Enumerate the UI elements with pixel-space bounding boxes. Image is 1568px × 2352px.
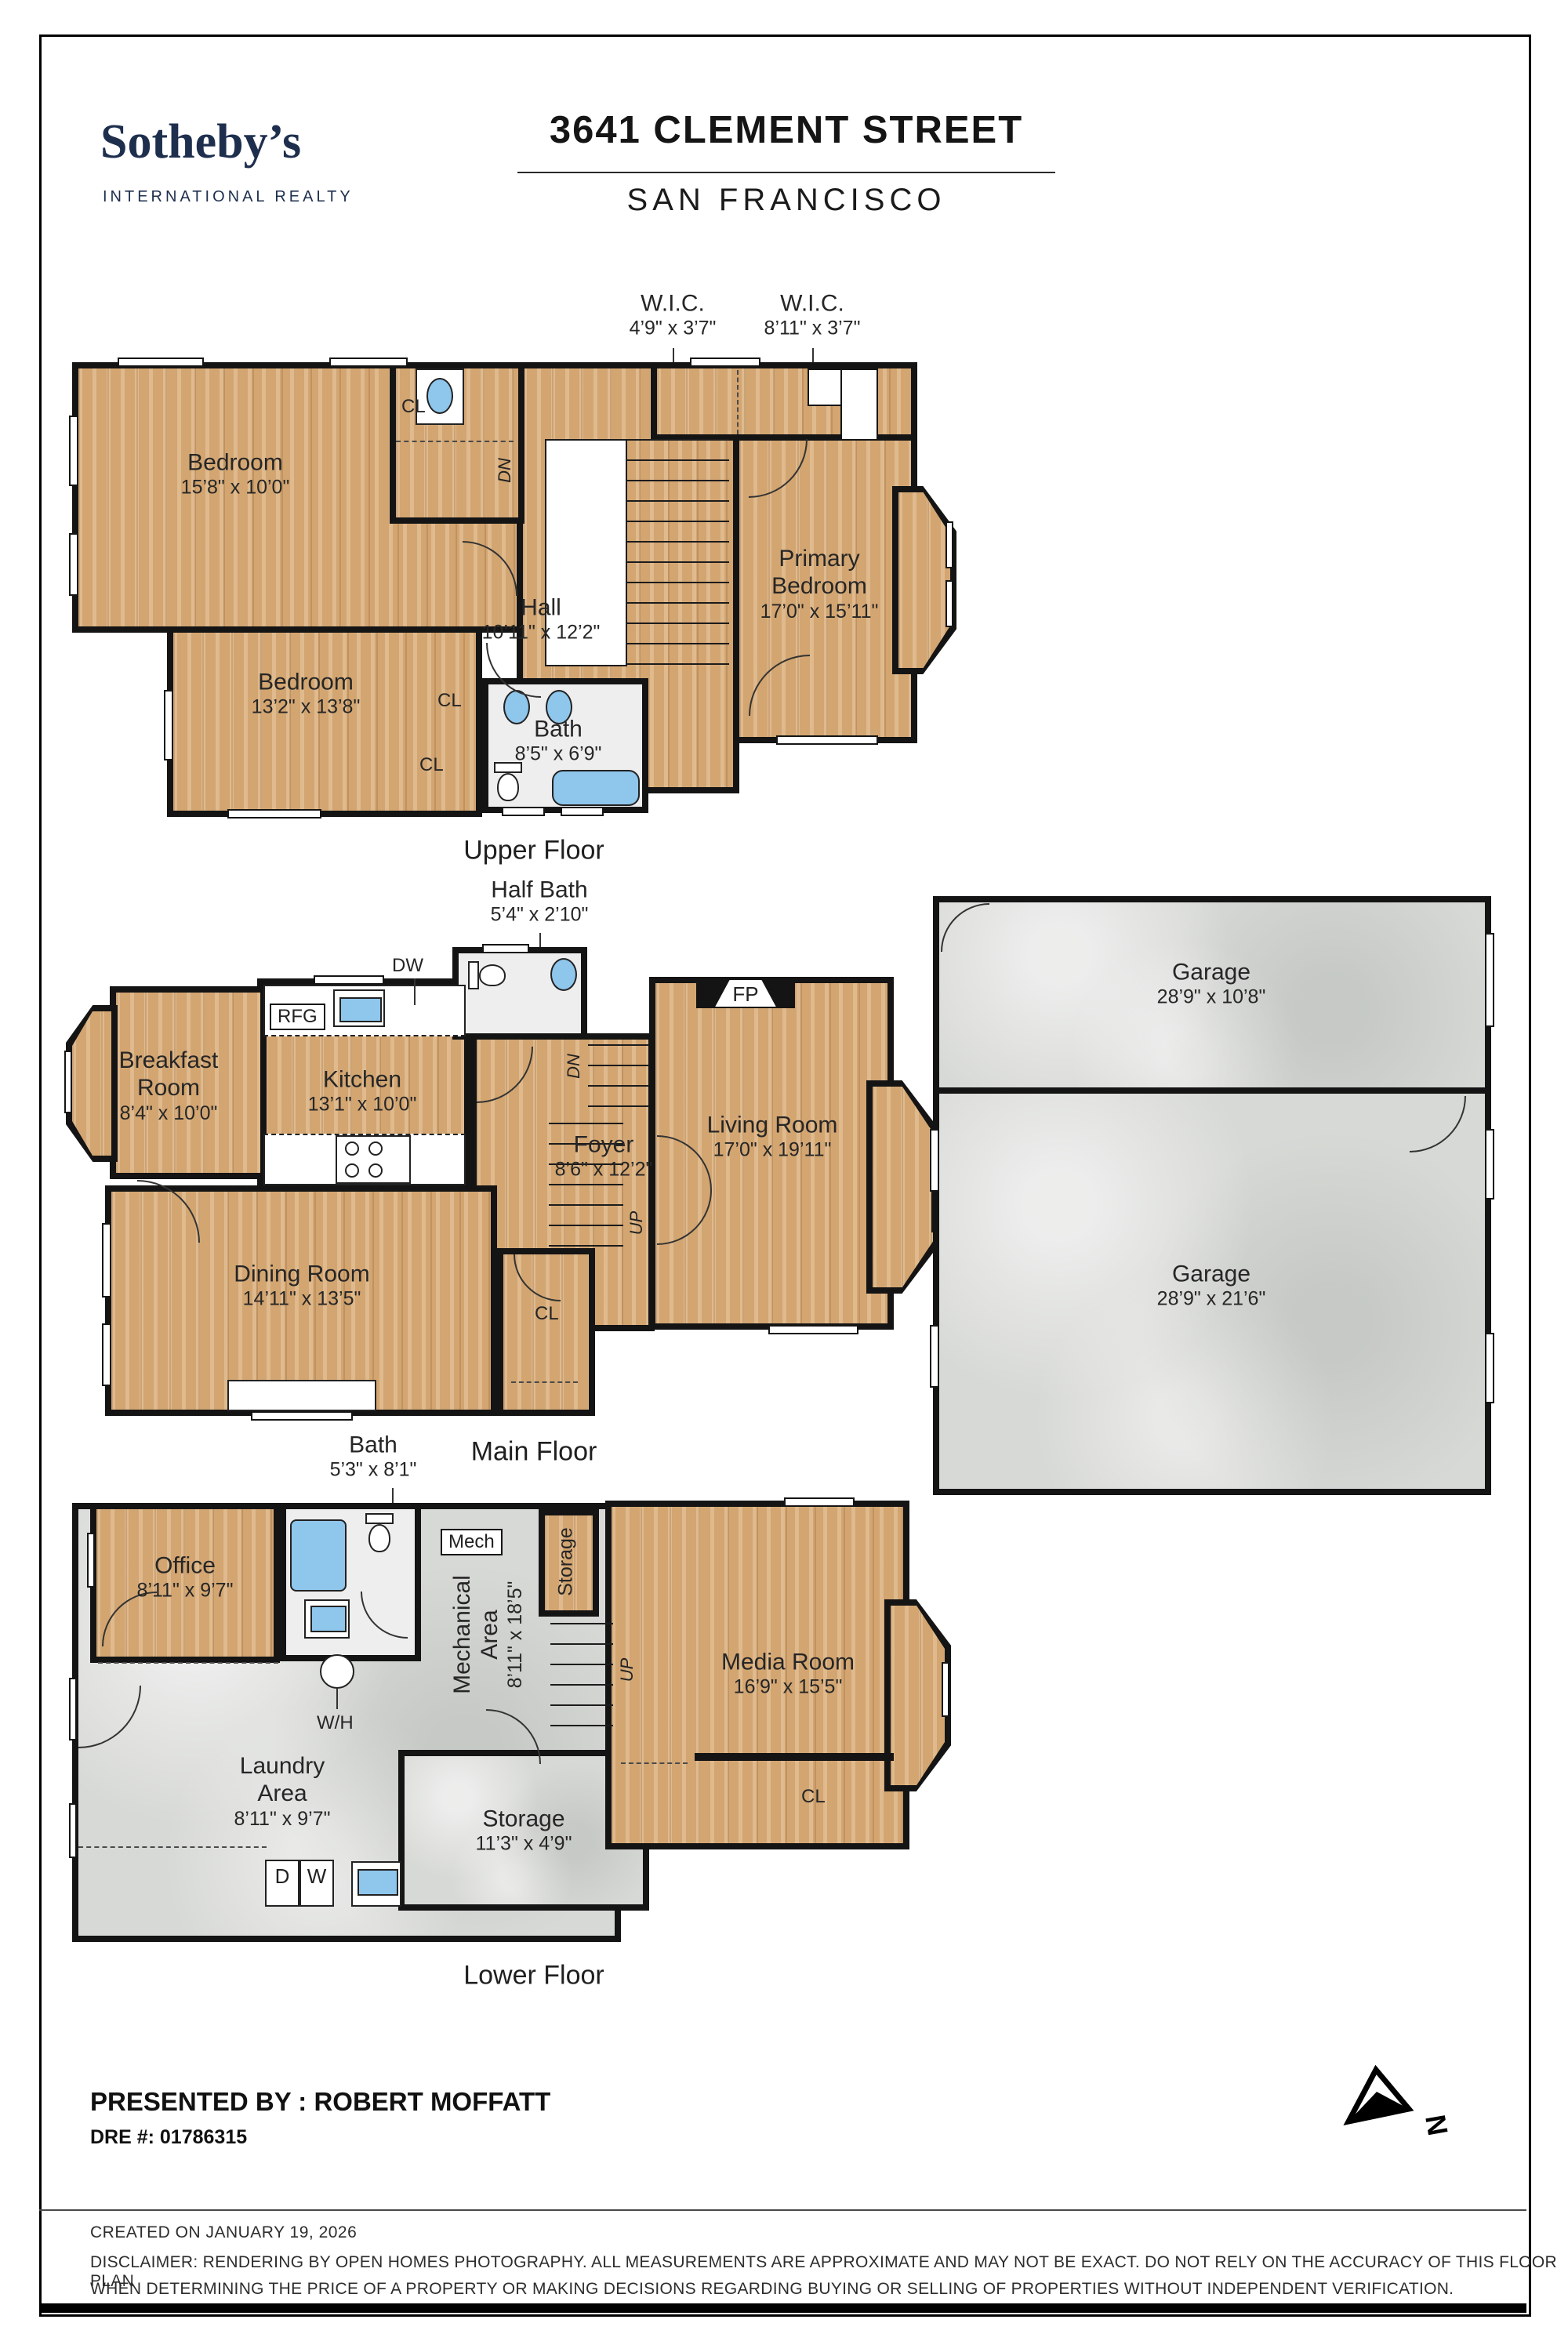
door-gap — [930, 1129, 939, 1192]
window — [482, 944, 529, 953]
closet-dashed-rod — [621, 1762, 688, 1764]
window — [69, 1803, 77, 1858]
laundry-sink-icon — [358, 1869, 398, 1896]
window — [784, 1497, 855, 1507]
closet-dashed-rod — [396, 441, 514, 442]
sink-icon — [310, 1606, 347, 1632]
window — [251, 1411, 353, 1421]
property-address: 3641 CLEMENT STREET — [510, 108, 1063, 152]
mech-label: Mech — [441, 1529, 503, 1555]
room-label-half-bath: Half Bath 5’4" x 2’10" — [491, 877, 589, 927]
sink-icon — [550, 958, 577, 991]
toilet-icon — [479, 964, 506, 986]
stairs-up-label-lower: UP — [617, 1658, 637, 1682]
toilet-icon — [468, 961, 479, 989]
window — [69, 533, 78, 596]
water-heater-leader — [336, 1689, 338, 1709]
bay-window — [946, 580, 953, 627]
presented-by: PRESENTED BY : ROBERT MOFFATT — [90, 2087, 550, 2117]
stairs-down-label-main: DN — [564, 1054, 584, 1079]
window — [561, 807, 604, 816]
fireplace-label: FP — [732, 982, 758, 1007]
window — [329, 358, 408, 367]
window — [227, 809, 321, 818]
disclaimer-line-2: WHEN DETERMINING THE PRICE OF A PROPERTY… — [90, 2280, 1454, 2299]
sink-icon — [426, 378, 453, 414]
window — [69, 416, 78, 486]
room-label-wic-1: W.I.C. 4’9" x 3’7" — [630, 290, 717, 341]
stove-burner — [345, 1142, 359, 1156]
closet-label: CL — [535, 1303, 559, 1325]
toilet-icon — [368, 1524, 390, 1552]
room-label-wic-2: W.I.C. 8’11" x 3’7" — [764, 290, 861, 341]
dining-sideboard — [227, 1380, 376, 1411]
laundry-dashed-line — [78, 1846, 267, 1848]
closet-wall — [695, 1753, 894, 1761]
dre-number: DRE #: 01786315 — [90, 2126, 247, 2149]
window — [314, 975, 384, 985]
closet-label: CL — [437, 690, 462, 712]
window — [776, 735, 878, 745]
fridge-label: RFG — [270, 1004, 325, 1030]
north-arrow-icon: N — [1333, 2060, 1450, 2139]
window — [118, 358, 204, 367]
room-label-hall: Hall 10’11" x 12’2" — [482, 594, 601, 645]
toilet-icon — [365, 1513, 394, 1524]
stove-burner — [368, 1163, 383, 1178]
toilet-icon — [497, 773, 519, 801]
water-heater-icon — [320, 1654, 354, 1689]
dryer-icon: D — [265, 1860, 299, 1907]
room-label-dining: Dining Room 14’11" x 13’5" — [234, 1261, 369, 1312]
bottom-border-bar — [39, 2303, 1526, 2313]
created-date: CREATED ON JANUARY 19, 2026 — [90, 2223, 357, 2242]
stairs-up-lower — [550, 1623, 613, 1740]
stairs-up-label-main: UP — [626, 1211, 647, 1236]
window — [1485, 933, 1494, 1027]
dishwasher-leader-line — [414, 978, 416, 1005]
closet-label: CL — [419, 754, 444, 776]
window — [1485, 1333, 1494, 1403]
room-bedroom-2 — [167, 626, 482, 817]
room-label-kitchen: Kitchen 13’1" x 10’0" — [308, 1066, 417, 1117]
wic-dashed-divider-1 — [737, 370, 739, 434]
floor-label-upper: Upper Floor — [463, 836, 604, 866]
window — [164, 690, 173, 760]
window — [502, 807, 545, 816]
closet-label: CL — [801, 1786, 826, 1808]
room-label-bath-upper: Bath 8’5" x 6’9" — [515, 716, 602, 767]
bay-window — [64, 1051, 72, 1113]
bathtub-icon — [552, 770, 640, 806]
header-divider — [517, 172, 1055, 173]
wic-builtin-shelf-2 — [840, 368, 878, 441]
room-label-breakfast: Breakfast Room 8’4" x 10’0" — [102, 1047, 235, 1125]
window — [1485, 1129, 1494, 1200]
bay-window — [946, 521, 953, 568]
stove-burner — [368, 1142, 383, 1156]
sothebys-logo: Sotheby’s — [100, 114, 301, 170]
sothebys-tagline: INTERNATIONAL REALTY — [103, 188, 354, 206]
room-label-bedroom-2: Bedroom 13’2" x 13’8" — [252, 669, 361, 720]
room-label-primary-bedroom: Primary Bedroom 17’0" x 15’11" — [749, 545, 890, 623]
room-label-media: Media Room 16’9" x 15’5" — [721, 1649, 855, 1700]
stairs-down-label-upper: DN — [495, 458, 515, 483]
room-label-storage-small: Storage — [554, 1527, 578, 1596]
closet-dashed-rod — [511, 1381, 578, 1383]
closet-label: CL — [401, 396, 426, 418]
door-gap — [930, 1325, 939, 1388]
washer-icon: W — [299, 1860, 334, 1907]
stairs-down-main — [588, 1044, 649, 1112]
window — [690, 358, 760, 367]
room-label-garage-2: Garage 28’9" x 21’6" — [1157, 1261, 1266, 1312]
shower-icon — [290, 1519, 347, 1592]
room-label-mechanical: Mechanical Area 8’11" x 18’5" — [448, 1556, 527, 1713]
floor-label-main: Main Floor — [471, 1437, 597, 1468]
floor-label-lower: Lower Floor — [463, 1961, 604, 1991]
room-label-living: Living Room 17’0" x 19’11" — [707, 1112, 838, 1163]
room-label-bedroom-1: Bedroom 15’8" x 10’0" — [181, 449, 290, 500]
stairs-upper — [627, 439, 729, 666]
room-label-laundry: Laundry Area 8’11" x 9’7" — [223, 1752, 341, 1831]
room-label-foyer: Foyer 8’6" x 12’2" — [555, 1131, 653, 1182]
window — [102, 1223, 111, 1298]
window — [102, 1323, 111, 1386]
floor-plan-page: Sotheby’s INTERNATIONAL REALTY 3641 CLEM… — [0, 0, 1568, 2352]
window — [87, 1533, 95, 1588]
laundry-dashed-line — [98, 1662, 278, 1664]
north-label: N — [1419, 2112, 1450, 2138]
bay-window — [942, 1662, 949, 1717]
property-city: SAN FRANCISCO — [510, 183, 1063, 218]
room-label-office: Office 8’11" x 9’7" — [137, 1552, 234, 1603]
window — [69, 1678, 77, 1740]
room-label-storage-lower: Storage 11’3" x 4’9" — [476, 1806, 572, 1857]
room-label-bath-lower: Bath 5’3" x 8’1" — [330, 1432, 417, 1483]
dishwasher-label: DW — [392, 955, 423, 977]
footer-divider — [39, 2209, 1526, 2211]
kitchen-sink-icon — [339, 997, 382, 1022]
stove-burner — [345, 1163, 359, 1178]
window — [768, 1325, 858, 1334]
water-heater-label: W/H — [317, 1712, 354, 1734]
room-label-garage-1: Garage 28’9" x 10’8" — [1157, 959, 1266, 1010]
